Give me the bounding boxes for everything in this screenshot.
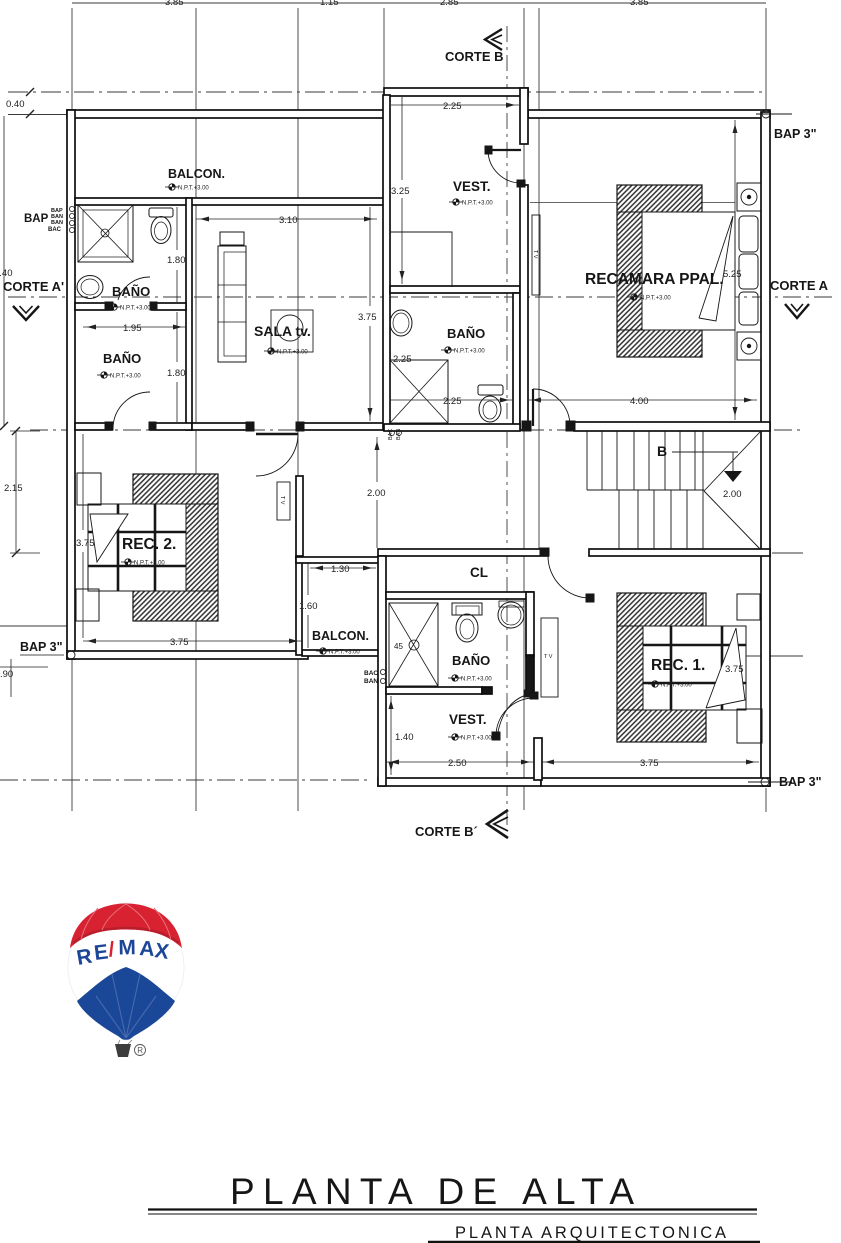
svg-text:VEST.: VEST. xyxy=(449,712,487,727)
svg-text:2.50: 2.50 xyxy=(448,758,467,769)
svg-text:3.25: 3.25 xyxy=(391,186,410,197)
svg-text:2.00: 2.00 xyxy=(367,488,386,499)
svg-text:N.P.T.+3.00: N.P.T.+3.00 xyxy=(461,736,492,742)
svg-text:N.P.T.+3.00: N.P.T.+3.00 xyxy=(329,650,360,656)
svg-text:3.75: 3.75 xyxy=(725,664,744,675)
svg-text:2.00: 2.00 xyxy=(723,489,742,500)
svg-text:3.85: 3.85 xyxy=(630,0,649,8)
svg-text:3.75: 3.75 xyxy=(76,538,95,549)
svg-text:3.85: 3.85 xyxy=(165,0,184,8)
svg-text:3.75: 3.75 xyxy=(358,312,377,323)
svg-text:4.00: 4.00 xyxy=(630,396,649,407)
svg-text:BAÑO: BAÑO xyxy=(452,653,490,668)
svg-text:N.P.T.+3.00: N.P.T.+3.00 xyxy=(462,201,493,207)
svg-text:N.P.T.+3.00: N.P.T.+3.00 xyxy=(661,683,692,689)
svg-text:CORTE A': CORTE A' xyxy=(3,279,64,294)
svg-text:VEST.: VEST. xyxy=(453,179,491,194)
svg-text:2.15: 2.15 xyxy=(4,483,23,494)
svg-text:N.P.T.+3.00: N.P.T.+3.00 xyxy=(110,374,141,380)
svg-text:REC. 2.: REC. 2. xyxy=(122,536,176,553)
svg-text:PLANTA ARQUITECTONICA: PLANTA ARQUITECTONICA xyxy=(455,1224,729,1242)
svg-text:BAN: BAN xyxy=(51,220,63,226)
svg-text:CORTE A: CORTE A xyxy=(770,278,829,293)
svg-text:1.15: 1.15 xyxy=(320,0,339,8)
svg-text:BAP 3": BAP 3" xyxy=(774,127,817,141)
svg-text:BAC: BAC xyxy=(48,227,62,233)
svg-text:BAÑO: BAÑO xyxy=(112,284,150,299)
svg-text:BAP: BAP xyxy=(24,213,49,225)
svg-text:1.30: 1.30 xyxy=(331,564,350,575)
svg-text:1.60: 1.60 xyxy=(299,601,318,612)
svg-text:CORTE B´: CORTE B´ xyxy=(415,824,478,839)
svg-text:.90: .90 xyxy=(0,669,13,680)
svg-text:1.40: 1.40 xyxy=(395,732,414,743)
svg-text:5.25: 5.25 xyxy=(723,269,742,280)
svg-text:BAÑO: BAÑO xyxy=(103,351,141,366)
svg-text:3.75: 3.75 xyxy=(640,758,659,769)
svg-text:BAÑO: BAÑO xyxy=(447,326,485,341)
svg-text:PLANTA DE ALTA: PLANTA DE ALTA xyxy=(230,1171,642,1212)
svg-text:N.P.T.+3.00: N.P.T.+3.00 xyxy=(134,561,165,567)
svg-text:2.25: 2.25 xyxy=(443,101,462,112)
svg-text:N.P.T.+3.00: N.P.T.+3.00 xyxy=(640,296,671,302)
svg-text:N.P.T.+3.00: N.P.T.+3.00 xyxy=(461,677,492,683)
svg-text:N.P.T.+3.00: N.P.T.+3.00 xyxy=(277,350,308,356)
svg-text:BAC: BAC xyxy=(364,670,378,677)
svg-text:REC. 1.: REC. 1. xyxy=(651,657,705,674)
svg-text:3.75: 3.75 xyxy=(170,637,189,648)
svg-text:2.25: 2.25 xyxy=(443,396,462,407)
svg-text:RECAMARA PPAL.: RECAMARA PPAL. xyxy=(585,271,724,288)
svg-text:2.85: 2.85 xyxy=(440,0,459,8)
svg-text:M: M xyxy=(118,936,136,959)
svg-text:CL: CL xyxy=(470,565,488,580)
svg-text:T V: T V xyxy=(279,496,285,505)
svg-text:BAC: BAC xyxy=(388,429,394,440)
svg-text:3.10: 3.10 xyxy=(279,215,298,226)
svg-text:B: B xyxy=(657,443,667,459)
svg-text:R: R xyxy=(137,1046,143,1055)
svg-text:1.95: 1.95 xyxy=(123,323,142,334)
svg-text:45: 45 xyxy=(394,642,403,651)
svg-text:CORTE B: CORTE B xyxy=(445,49,504,64)
svg-text:A: A xyxy=(139,937,156,961)
svg-text:2.25: 2.25 xyxy=(393,354,412,365)
svg-text:N.P.T.+3.00: N.P.T.+3.00 xyxy=(120,306,151,312)
svg-text:T V: T V xyxy=(544,654,553,660)
svg-text:T V: T V xyxy=(532,250,538,259)
svg-text:N.P.T.+3.00: N.P.T.+3.00 xyxy=(178,186,209,192)
svg-text:1.80: 1.80 xyxy=(167,255,186,266)
svg-text:1.80: 1.80 xyxy=(167,368,186,379)
svg-text:BALCON.: BALCON. xyxy=(312,629,369,643)
svg-text:BALCON.: BALCON. xyxy=(168,167,225,181)
svg-text:E: E xyxy=(93,940,110,965)
svg-text:BAN: BAN xyxy=(364,678,378,685)
svg-text:N.P.T.+3.00: N.P.T.+3.00 xyxy=(454,349,485,355)
svg-text:0.40: 0.40 xyxy=(6,99,25,110)
svg-text:1.40: 1.40 xyxy=(0,268,13,279)
svg-text:BAP 3": BAP 3" xyxy=(20,640,63,654)
